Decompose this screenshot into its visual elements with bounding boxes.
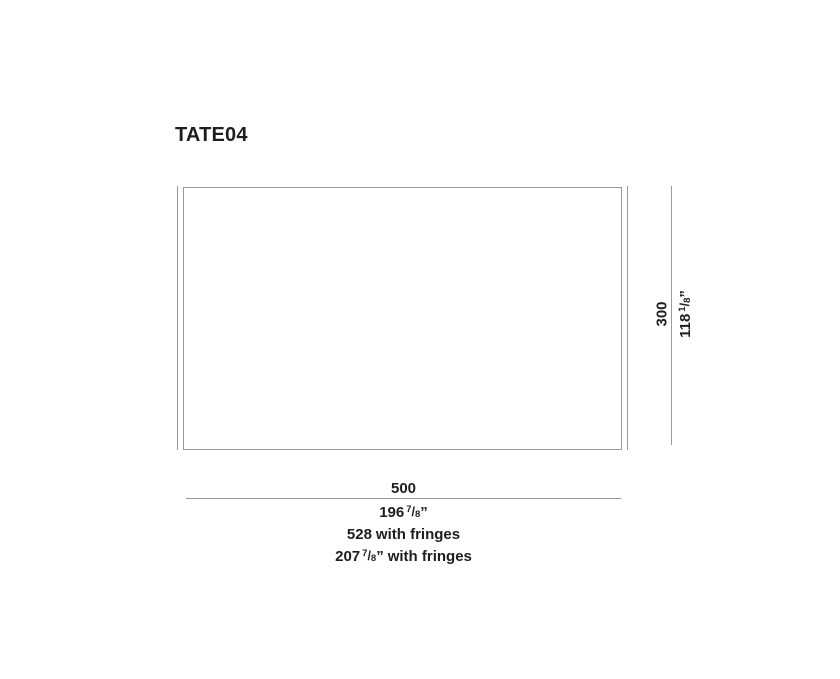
width-label-inches: 1967/8” [186,501,621,523]
height-fraction-denominator: 8 [682,298,693,303]
height-label-cm: 300 [654,301,671,326]
height-inch-mark: ” [677,290,694,298]
product-dimension-sheet: TATE04 300 1181/8” 500 1967/8” 528with f… [0,0,840,679]
fringes-inches-suffix: with fringes [388,548,472,565]
width-label-cm: 500 [186,480,621,497]
height-inches-whole: 118 [677,314,694,338]
width-dimension-line [186,498,621,499]
height-fraction-numerator: 1 [677,306,688,311]
height-label-inches: 1181/8” [674,290,696,338]
width-inch-mark: ” [420,504,428,521]
rug-outline [183,187,622,450]
height-dimension-line [671,186,672,445]
fringes-inch-mark: ” [376,548,384,565]
fringes-inches-whole: 207 [335,548,360,565]
width-inches-whole: 196 [379,504,404,521]
height-fraction-slash: / [678,303,692,306]
fringes-label-cm: 528with fringes [186,526,621,543]
left-fringe-line [177,186,178,450]
right-fringe-line [627,186,628,450]
fringes-label-inches: 2077/8”with fringes [186,545,621,567]
product-code-title: TATE04 [175,126,248,144]
fringes-cm-value: 528 [347,526,372,543]
fringes-cm-suffix: with fringes [376,526,460,543]
